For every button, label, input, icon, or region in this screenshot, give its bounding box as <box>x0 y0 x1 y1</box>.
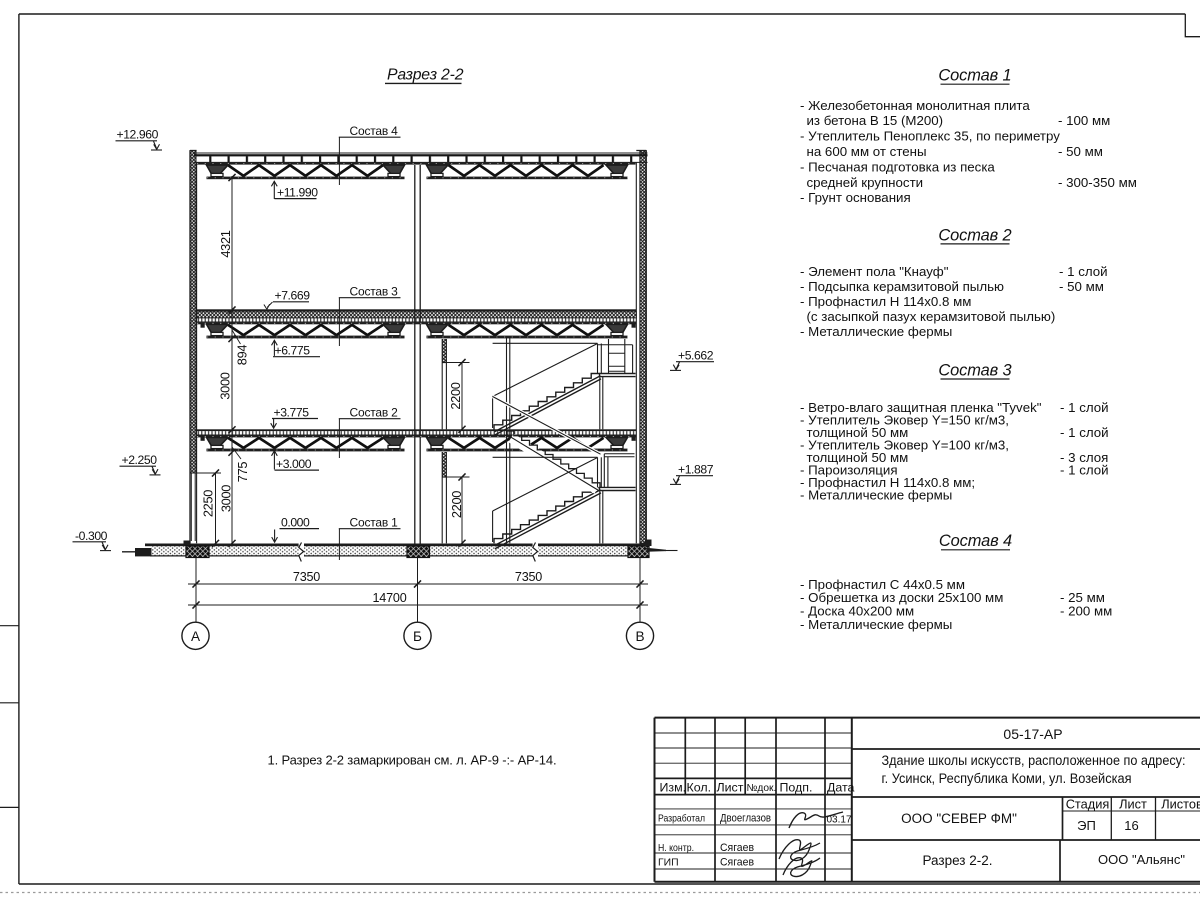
svg-text:- 1 слой: - 1 слой <box>1059 264 1108 279</box>
svg-text:894: 894 <box>235 345 250 366</box>
svg-text:Лист: Лист <box>717 780 744 794</box>
svg-text:2200: 2200 <box>449 491 464 518</box>
svg-text:- 300-350 мм: - 300-350 мм <box>1058 175 1137 190</box>
svg-text:на 600 мм от стены: на 600 мм от стены <box>807 144 927 159</box>
svg-text:Лист: Лист <box>1119 796 1147 811</box>
svg-text:- 50 мм: - 50 мм <box>1059 279 1104 294</box>
svg-text:Состав 3: Состав 3 <box>350 285 399 299</box>
svg-text:Состав 2: Состав 2 <box>938 226 1011 244</box>
svg-text:+7.669: +7.669 <box>275 289 311 303</box>
svg-text:- Железобетонная монолитная п: - Железобетонная монолитная плита <box>800 98 1030 113</box>
svg-text:05-17-АР: 05-17-АР <box>1003 726 1062 742</box>
svg-text:А: А <box>191 629 201 644</box>
svg-text:+11.990: +11.990 <box>277 186 318 200</box>
svg-text:Состав 1: Состав 1 <box>350 516 399 530</box>
svg-text:- 200 мм: - 200 мм <box>1060 604 1112 619</box>
svg-text:Сягаев: Сягаев <box>720 857 754 869</box>
svg-text:Листов: Листов <box>1161 796 1200 811</box>
svg-text:2200: 2200 <box>448 382 463 409</box>
svg-text:+5.662: +5.662 <box>678 349 714 363</box>
svg-text:Состав 1: Состав 1 <box>938 67 1011 85</box>
svg-text:2250: 2250 <box>201 490 216 517</box>
svg-text:ООО "СЕВЕР ФМ": ООО "СЕВЕР ФМ" <box>901 811 1017 826</box>
svg-text:Изм.: Изм. <box>660 780 687 794</box>
svg-text:Разрез 2-2.: Разрез 2-2. <box>922 853 992 868</box>
svg-text:- 50 мм: - 50 мм <box>1058 144 1103 159</box>
svg-text:- Песчаная подготовка из песка: - Песчаная подготовка из песка <box>800 159 995 174</box>
svg-text:Здание школы искусств, располо: Здание школы искусств, расположенное по … <box>882 753 1186 768</box>
svg-text:+2.250: +2.250 <box>122 453 158 467</box>
svg-text:Б: Б <box>413 629 422 644</box>
svg-text:Разрез 2-2: Разрез 2-2 <box>387 67 464 84</box>
svg-text:+6.775: +6.775 <box>275 344 311 358</box>
svg-text:- Металлические фермы: - Металлические фермы <box>800 487 952 502</box>
svg-text:0.000: 0.000 <box>281 516 310 530</box>
svg-text:+3.000: +3.000 <box>276 457 312 471</box>
svg-text:Состав 4: Состав 4 <box>939 532 1012 550</box>
svg-text:- 1 слой: - 1 слой <box>1060 425 1109 440</box>
svg-text:4321: 4321 <box>218 230 233 257</box>
svg-text:3000: 3000 <box>219 485 234 512</box>
svg-text:- 100 мм: - 100 мм <box>1058 113 1110 128</box>
svg-text:- 1 слой: - 1 слой <box>1060 400 1109 415</box>
svg-text:ГИП: ГИП <box>658 858 679 869</box>
svg-text:- Металлические фермы: - Металлические фермы <box>800 617 952 632</box>
svg-text:+1.887: +1.887 <box>678 463 714 477</box>
svg-text:- Подсыпка керамзитовой пылью: - Подсыпка керамзитовой пылью <box>800 279 1004 294</box>
svg-text:7350: 7350 <box>515 570 542 584</box>
svg-text:г. Усинск, Республика Коми, ул: г. Усинск, Республика Коми, ул. Возейска… <box>882 771 1132 786</box>
svg-text:Сягаев: Сягаев <box>720 842 754 854</box>
svg-text:16: 16 <box>1124 818 1138 833</box>
svg-text:+12.960: +12.960 <box>117 128 159 142</box>
svg-text:Состав 3: Состав 3 <box>938 361 1011 379</box>
svg-text:(с засыпкой пазух керамзитовой: (с засыпкой пазух керамзитовой пылью) <box>807 309 1056 324</box>
svg-text:Кол.: Кол. <box>687 780 712 794</box>
svg-text:Состав 2: Состав 2 <box>350 406 399 420</box>
svg-text:- Металлические фермы: - Металлические фермы <box>800 324 952 339</box>
svg-text:Н. контр.: Н. контр. <box>658 843 694 854</box>
svg-text:-0.300: -0.300 <box>75 529 108 543</box>
svg-text:Двоеглазов: Двоеглазов <box>720 813 771 825</box>
svg-text:ЭП: ЭП <box>1077 818 1096 833</box>
svg-text:1. Разрез 2-2 замаркирован см.: 1. Разрез 2-2 замаркирован см. л. АР-9 -… <box>268 753 557 768</box>
svg-text:№док.: №док. <box>747 783 777 794</box>
svg-text:Стадия: Стадия <box>1066 796 1110 811</box>
svg-text:Подп.: Подп. <box>780 780 813 794</box>
svg-text:- Утеплитель Пеноплекс 35, по: - Утеплитель Пеноплекс 35, по периметру <box>800 129 1060 144</box>
svg-text:- 1 слой: - 1 слой <box>1060 462 1109 477</box>
svg-text:Дата: Дата <box>827 780 855 794</box>
svg-text:Разработал: Разработал <box>658 813 705 825</box>
svg-text:+3.775: +3.775 <box>274 406 310 420</box>
svg-text:3000: 3000 <box>218 372 233 399</box>
svg-text:ООО "Альянс": ООО "Альянс" <box>1098 852 1185 867</box>
svg-text:14700: 14700 <box>372 591 406 605</box>
svg-text:В: В <box>635 629 644 644</box>
svg-text:- Грунт основания: - Грунт основания <box>800 190 911 205</box>
svg-text:Состав 4: Состав 4 <box>350 124 399 138</box>
svg-text:из бетона В 15 (М200): из бетона В 15 (М200) <box>807 113 944 128</box>
svg-text:- Профнастил Н 114х0.8 мм: - Профнастил Н 114х0.8 мм <box>800 294 971 309</box>
svg-text:- Элемент пола "Кнауф": - Элемент пола "Кнауф" <box>800 264 949 279</box>
svg-text:средней крупности: средней крупности <box>807 175 924 190</box>
svg-text:7350: 7350 <box>293 570 320 584</box>
svg-text:775: 775 <box>235 462 250 483</box>
